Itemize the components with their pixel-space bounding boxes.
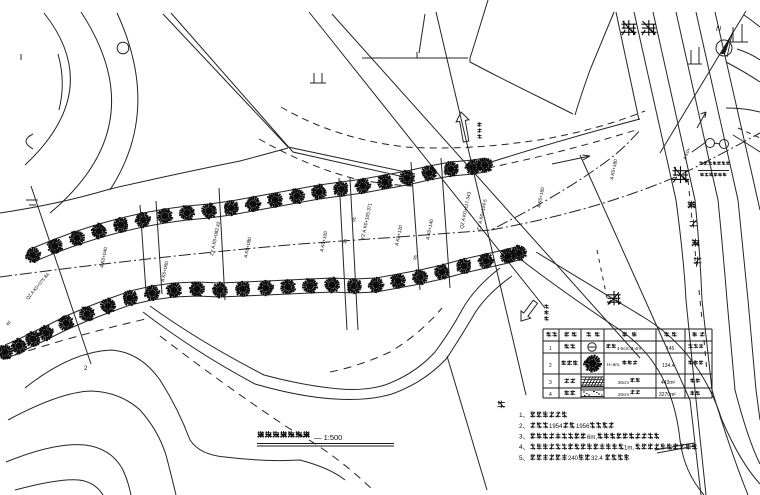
svg-text:5、: 5、	[519, 455, 529, 462]
svg-text:134.4: 134.4	[662, 363, 675, 369]
svg-text:3、: 3、	[519, 434, 529, 441]
svg-text:4-5cm,3-4m: 4-5cm,3-4m	[617, 346, 641, 351]
svg-text:145: 145	[666, 346, 675, 352]
svg-text:3270m²: 3270m²	[659, 392, 676, 398]
svg-text:1、: 1、	[519, 412, 529, 419]
svg-text:H=6m,: H=6m,	[607, 362, 620, 367]
svg-text:1954: 1954	[549, 424, 563, 430]
svg-text:1956: 1956	[576, 424, 590, 430]
svg-text:6m,: 6m,	[587, 435, 597, 441]
svg-text:3: 3	[549, 380, 552, 386]
svg-text:30cm: 30cm	[618, 380, 629, 385]
svg-text:2: 2	[549, 363, 552, 369]
svg-text:— 1:500: — 1:500	[314, 433, 342, 442]
svg-text:32.4: 32.4	[591, 456, 603, 462]
svg-text:2、: 2、	[519, 423, 529, 430]
svg-text:4、: 4、	[519, 444, 529, 451]
svg-text:443m²: 443m²	[661, 380, 676, 386]
svg-text:1m,: 1m,	[624, 446, 634, 452]
svg-text:4: 4	[549, 392, 552, 398]
svg-text:1: 1	[549, 346, 552, 352]
svg-text:20cm: 20cm	[618, 392, 629, 397]
svg-text:240: 240	[568, 456, 579, 462]
